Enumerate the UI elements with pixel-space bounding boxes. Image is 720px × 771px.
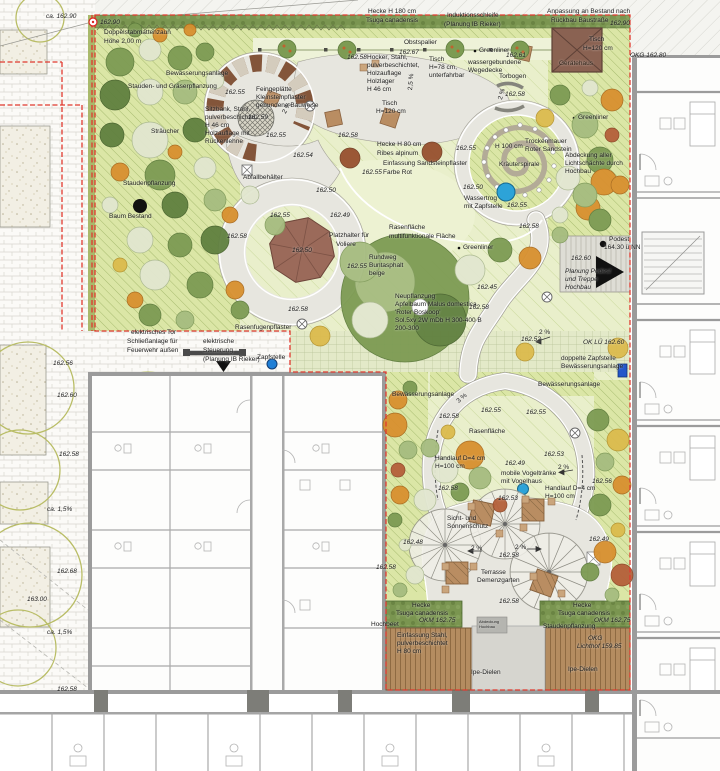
plaza-center-circle: [238, 100, 274, 136]
podest-area: [560, 236, 630, 292]
podest-point-marker: [600, 241, 606, 247]
tap-marker: [267, 359, 277, 369]
site-plan-canvas: [0, 0, 720, 771]
raised-bed-deck: [545, 628, 630, 690]
planting-bed: [0, 30, 47, 74]
hedge-block: [386, 601, 462, 627]
double-tap-marker: [618, 364, 627, 377]
existing-tree-marker: [133, 199, 147, 213]
site-plan: ca. 162.90162.90DoppelstabmattenzaunHöhe…: [0, 0, 720, 771]
planting-bed: [0, 126, 50, 227]
waste-bin-marker: [242, 165, 252, 175]
water-trough-marker: [497, 183, 515, 201]
planting-bed: [0, 345, 46, 455]
top-hedge: [95, 15, 630, 28]
hedge-block: [540, 601, 630, 627]
planting-bed: [0, 482, 48, 524]
raised-bed-deck: [386, 628, 472, 690]
planting-bed: [0, 547, 50, 627]
